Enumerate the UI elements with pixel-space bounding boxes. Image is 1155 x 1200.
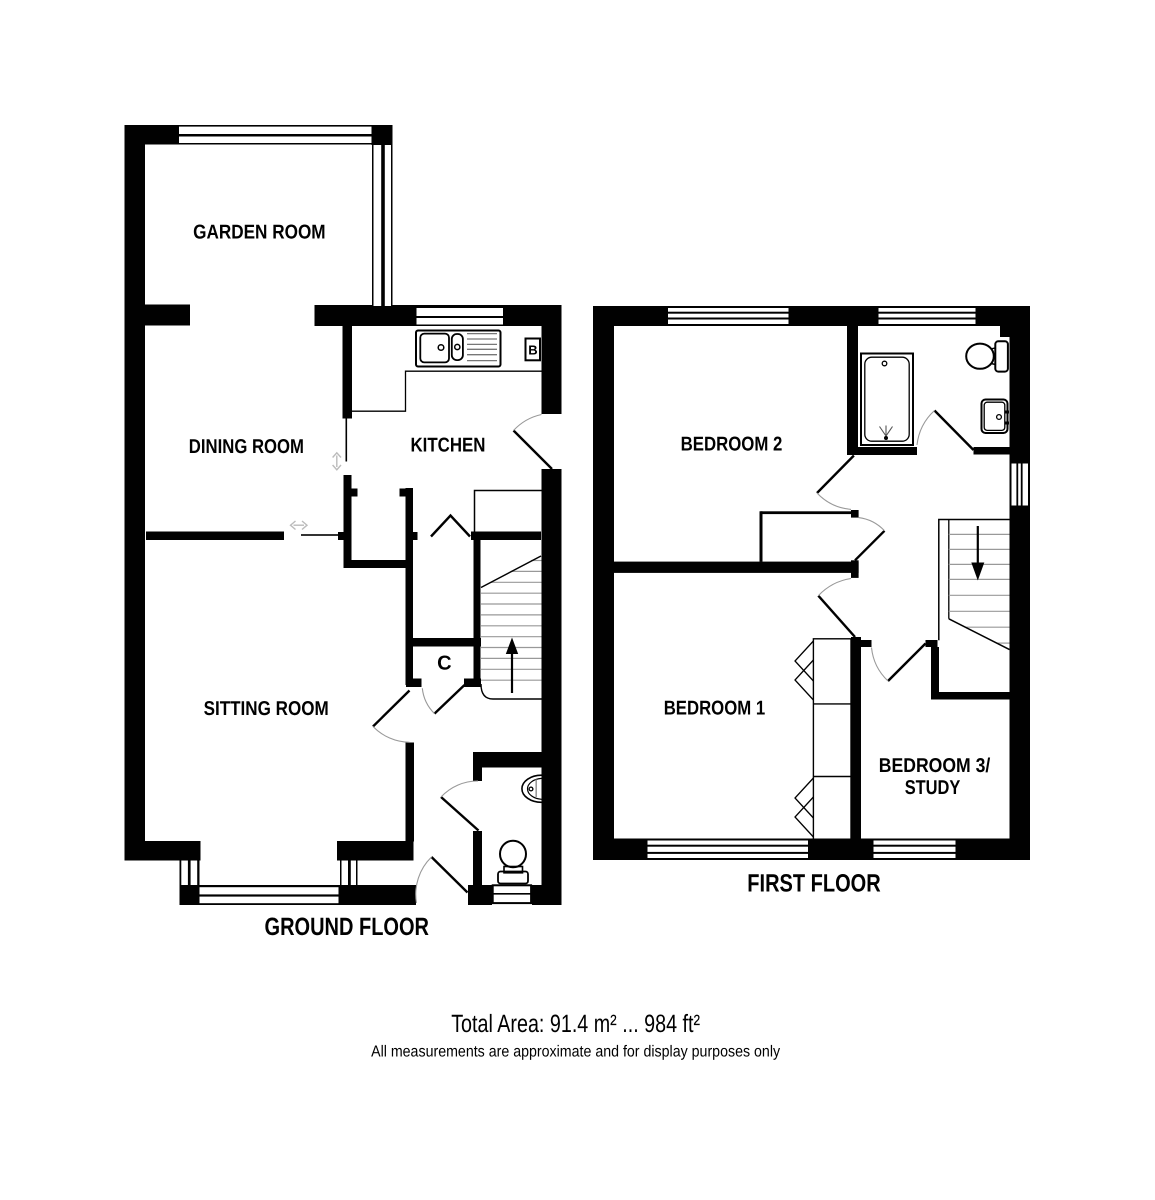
svg-text:C: C: [437, 652, 452, 674]
svg-text:STUDY: STUDY: [905, 777, 961, 799]
svg-text:BEDROOM 2: BEDROOM 2: [681, 434, 783, 456]
svg-text:FIRST FLOOR: FIRST FLOOR: [747, 870, 880, 898]
svg-text:BEDROOM 3/: BEDROOM 3/: [879, 755, 991, 777]
svg-text:B: B: [528, 343, 537, 358]
svg-text:All measurements are approxima: All measurements are approximate and for…: [371, 1044, 780, 1061]
svg-text:Total Area: 91.4 m² ... 984 ft: Total Area: 91.4 m² ... 984 ft²: [451, 1010, 700, 1038]
svg-text:SITTING ROOM: SITTING ROOM: [204, 698, 329, 720]
svg-text:KITCHEN: KITCHEN: [411, 435, 486, 457]
svg-text:BEDROOM 1: BEDROOM 1: [664, 697, 766, 719]
svg-text:DINING ROOM: DINING ROOM: [189, 436, 304, 458]
svg-text:GROUND FLOOR: GROUND FLOOR: [265, 913, 430, 941]
svg-text:GARDEN ROOM: GARDEN ROOM: [193, 222, 326, 244]
